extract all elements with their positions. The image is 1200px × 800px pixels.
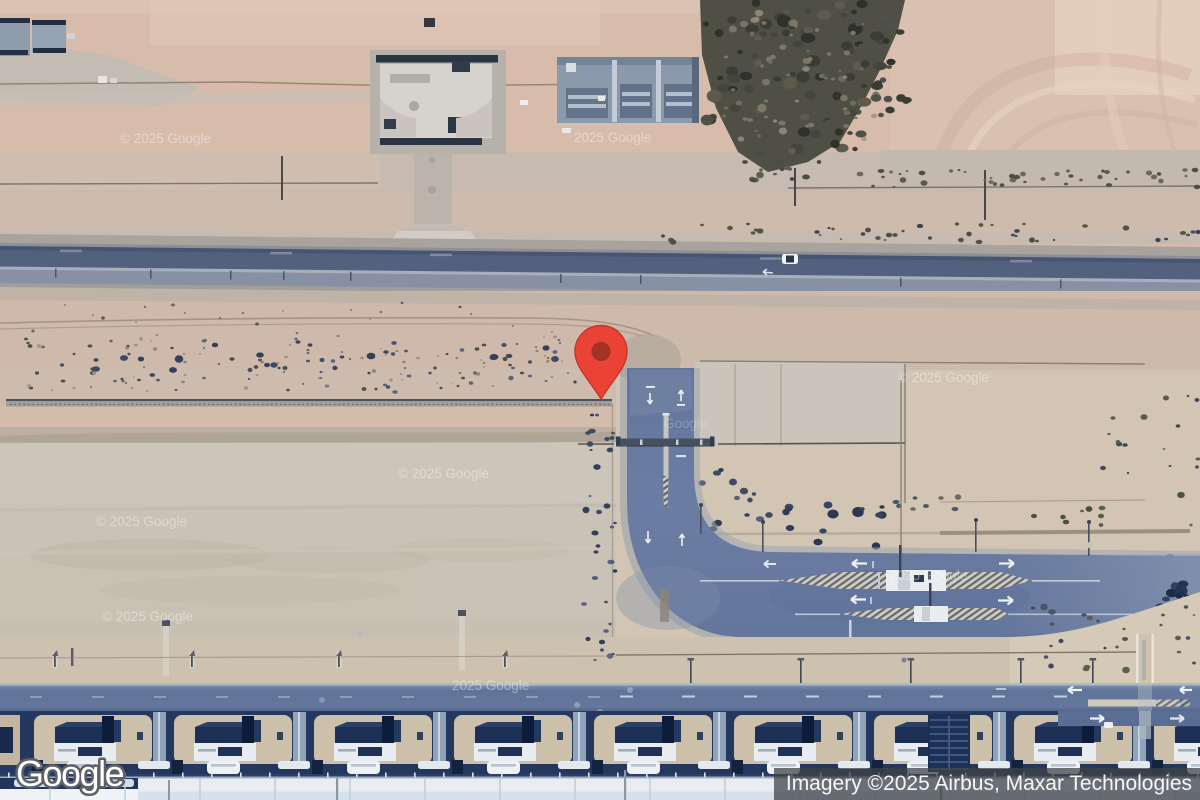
svg-text:2025 Google: 2025 Google [890, 568, 967, 583]
svg-text:2025 Google: 2025 Google [574, 130, 651, 145]
svg-text:© 2025 Google: © 2025 Google [96, 514, 187, 529]
svg-text:2025 Google: 2025 Google [452, 678, 529, 693]
svg-text:© 2025 Google: © 2025 Google [120, 131, 211, 146]
svg-text:© 2025 Google: © 2025 Google [398, 466, 489, 481]
svg-text:© 2025 Google: © 2025 Google [102, 609, 193, 624]
svg-text:Google: Google [16, 753, 124, 794]
svg-text:Google: Google [664, 416, 708, 431]
svg-text:© 2025 Google: © 2025 Google [898, 370, 989, 385]
svg-text:Imagery ©2025 Airbus, Maxar Te: Imagery ©2025 Airbus, Maxar Technologies [786, 772, 1192, 795]
